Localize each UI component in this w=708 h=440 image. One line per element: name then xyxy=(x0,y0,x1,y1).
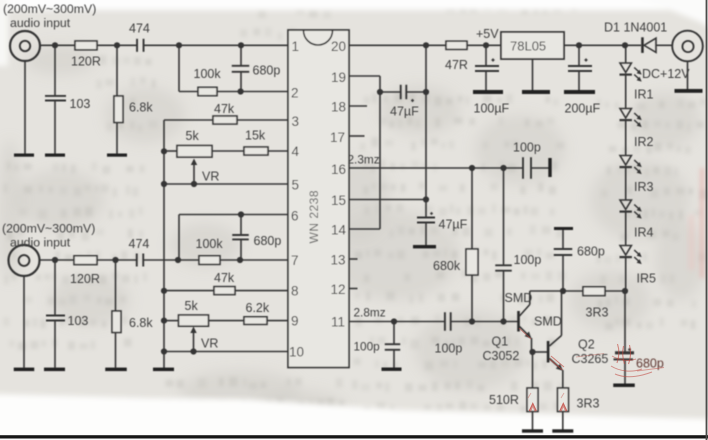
svg-text:3: 3 xyxy=(292,114,300,129)
svg-text:SMD: SMD xyxy=(505,291,533,305)
svg-text:8: 8 xyxy=(291,284,299,299)
svg-text:120R: 120R xyxy=(70,272,100,286)
svg-text:47k: 47k xyxy=(214,102,235,116)
svg-text:680p: 680p xyxy=(254,234,282,248)
svg-text:18: 18 xyxy=(331,100,346,115)
svg-text:IR4: IR4 xyxy=(634,226,654,240)
svg-text:19: 19 xyxy=(331,70,346,85)
svg-text:audio input: audio input xyxy=(10,16,71,30)
svg-text:C3265: C3265 xyxy=(572,352,609,366)
svg-text:47R: 47R xyxy=(445,58,468,72)
svg-text:6: 6 xyxy=(291,209,299,224)
svg-text:3R3: 3R3 xyxy=(577,397,600,411)
svg-text:17: 17 xyxy=(330,130,345,145)
svg-text:2.3mz: 2.3mz xyxy=(348,153,380,167)
svg-text:15: 15 xyxy=(331,193,346,208)
svg-text:200µF: 200µF xyxy=(565,102,601,116)
svg-text:680k: 680k xyxy=(433,259,461,273)
svg-text:11: 11 xyxy=(331,315,345,330)
svg-text:474: 474 xyxy=(129,22,150,36)
svg-text:6.8k: 6.8k xyxy=(129,316,153,330)
svg-text:100p: 100p xyxy=(435,342,463,356)
svg-text:Q1: Q1 xyxy=(492,335,509,349)
svg-text:IR2: IR2 xyxy=(634,135,654,149)
svg-text:120R: 120R xyxy=(71,55,101,69)
svg-text:100k: 100k xyxy=(196,237,224,251)
svg-text:680p: 680p xyxy=(253,64,281,78)
svg-text:20: 20 xyxy=(331,39,346,54)
svg-text:IR5: IR5 xyxy=(637,272,657,286)
svg-text:DC+12V: DC+12V xyxy=(642,67,690,81)
svg-text:2.8mz: 2.8mz xyxy=(354,306,386,320)
svg-text:47k: 47k xyxy=(214,271,235,285)
svg-text:47µF: 47µF xyxy=(390,105,419,119)
svg-text:IR3: IR3 xyxy=(634,180,654,194)
svg-text:5k: 5k xyxy=(185,299,199,313)
svg-text:6.8k: 6.8k xyxy=(129,101,153,115)
svg-text:78L05: 78L05 xyxy=(510,39,546,54)
svg-text:7: 7 xyxy=(291,253,299,268)
svg-text:15k: 15k xyxy=(245,129,266,143)
svg-text:12: 12 xyxy=(330,282,345,297)
svg-text:103: 103 xyxy=(70,97,91,111)
svg-text:D1 1N4001: D1 1N4001 xyxy=(604,21,667,35)
svg-text:4: 4 xyxy=(292,144,300,159)
svg-text:103: 103 xyxy=(68,314,89,328)
svg-text:2: 2 xyxy=(291,86,299,101)
svg-text:510R: 510R xyxy=(489,393,519,407)
svg-text:WN 2238: WN 2238 xyxy=(307,190,321,244)
svg-text:100p: 100p xyxy=(354,340,381,354)
svg-text:100k: 100k xyxy=(194,67,222,81)
svg-text:16: 16 xyxy=(331,162,346,177)
svg-text:Q2: Q2 xyxy=(578,338,595,352)
svg-text:+5V: +5V xyxy=(476,27,499,41)
svg-text:9: 9 xyxy=(291,314,299,329)
svg-text:3R3: 3R3 xyxy=(586,306,609,320)
svg-text:C3052: C3052 xyxy=(483,349,520,363)
svg-text:audio input: audio input xyxy=(10,236,71,250)
svg-text:(200mV~300mV): (200mV~300mV) xyxy=(3,2,96,16)
svg-text:SMD: SMD xyxy=(534,315,562,329)
svg-text:14: 14 xyxy=(331,223,347,238)
svg-text:100p: 100p xyxy=(514,253,542,267)
svg-text:1: 1 xyxy=(292,39,300,54)
svg-text:(200mV~300mV): (200mV~300mV) xyxy=(2,222,95,236)
svg-text:10: 10 xyxy=(289,345,304,360)
svg-text:100µF: 100µF xyxy=(474,102,510,116)
svg-text:6.2k: 6.2k xyxy=(246,301,270,315)
svg-text:13: 13 xyxy=(330,253,345,268)
svg-text:680p: 680p xyxy=(577,245,605,259)
svg-text:5k: 5k xyxy=(186,129,200,143)
svg-text:5: 5 xyxy=(292,178,300,193)
svg-text:47µF: 47µF xyxy=(439,218,468,232)
svg-text:474: 474 xyxy=(129,237,150,251)
svg-text:VR: VR xyxy=(202,170,219,184)
svg-text:100p: 100p xyxy=(513,141,541,155)
svg-text:IR1: IR1 xyxy=(634,88,654,102)
svg-text:VR: VR xyxy=(201,337,218,351)
